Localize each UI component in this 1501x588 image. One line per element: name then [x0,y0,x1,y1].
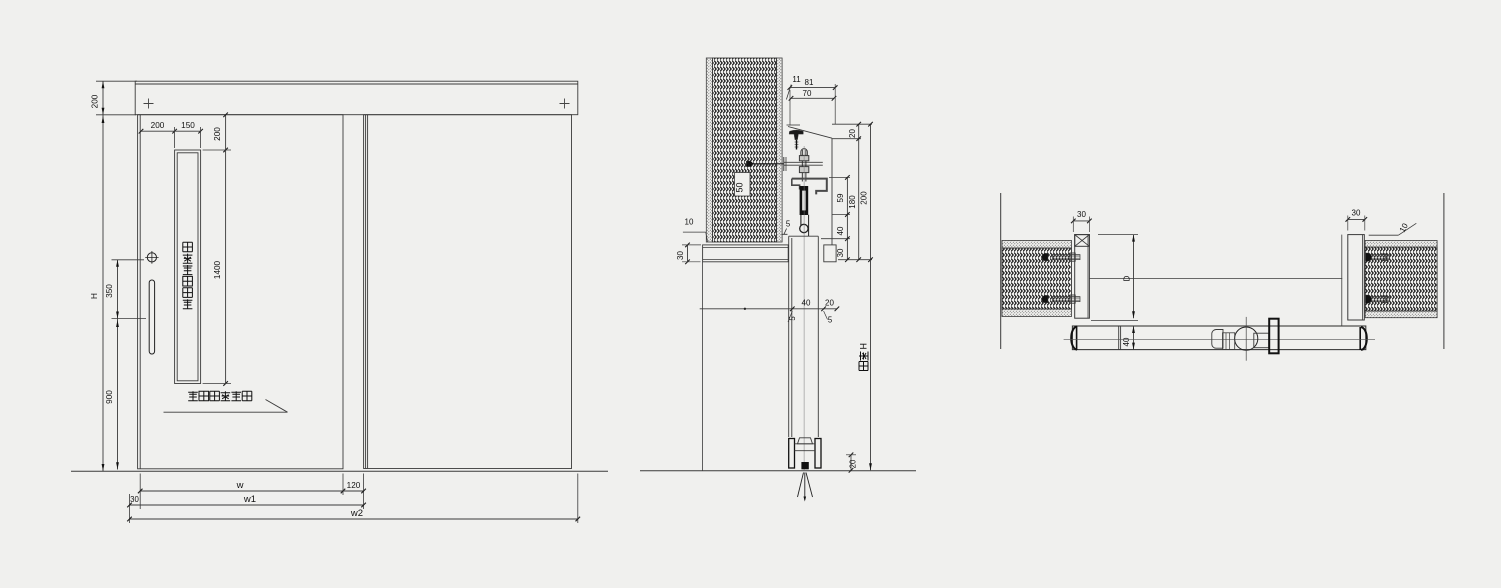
svg-text:5: 5 [786,220,791,229]
svg-text:30: 30 [130,495,139,504]
svg-text:D: D [1123,275,1132,281]
svg-text:w1: w1 [243,494,256,505]
svg-text:70: 70 [803,89,812,98]
svg-text:40: 40 [1122,337,1131,346]
svg-text:59: 59 [836,193,845,202]
svg-text:30: 30 [836,248,845,257]
svg-text:30: 30 [1352,209,1361,218]
svg-text:1400: 1400 [213,260,222,279]
svg-text:30: 30 [1077,210,1086,219]
svg-text:20: 20 [848,129,857,138]
svg-text:900: 900 [105,390,114,404]
svg-text:w2: w2 [350,508,363,519]
svg-text:11: 11 [792,75,801,84]
svg-text:20: 20 [849,459,858,468]
svg-text:200: 200 [151,121,165,130]
svg-text:120: 120 [347,481,361,490]
svg-text:200: 200 [213,127,222,141]
svg-text:H: H [859,343,869,350]
svg-text:40: 40 [836,226,845,235]
svg-text:30: 30 [676,251,685,260]
svg-text:40: 40 [802,298,811,307]
svg-text:20: 20 [825,298,834,307]
svg-text:180: 180 [848,195,857,209]
svg-text:350: 350 [105,284,114,298]
svg-text:H: H [90,293,99,299]
svg-text:150: 150 [181,121,195,130]
svg-text:200: 200 [860,191,869,205]
svg-text:81: 81 [805,78,814,87]
svg-text:200: 200 [91,94,100,108]
svg-text:w: w [236,480,244,491]
svg-text:5: 5 [828,316,833,325]
svg-text:10: 10 [685,218,694,227]
svg-text:50: 50 [735,182,745,192]
